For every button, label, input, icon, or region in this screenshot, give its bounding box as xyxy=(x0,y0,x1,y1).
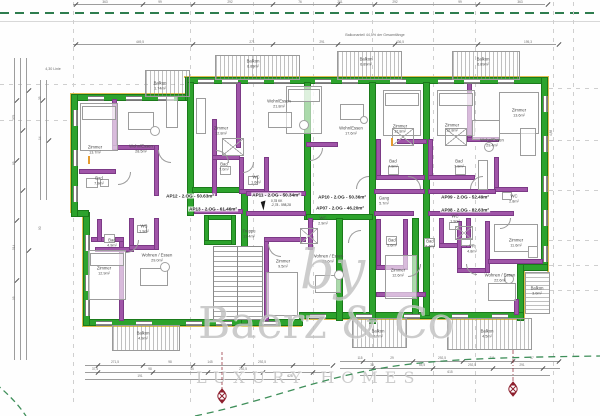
dimension-value: 99 xyxy=(458,0,462,4)
round-fixture xyxy=(160,262,170,272)
window xyxy=(543,176,548,192)
green-wall xyxy=(370,83,375,323)
survey-marker-icon xyxy=(218,352,226,403)
room-label: Wohn/Essen29.4m² xyxy=(480,138,504,147)
dimension-tick xyxy=(557,42,562,47)
room-area: 7.4m² xyxy=(425,244,435,248)
door-arc xyxy=(126,240,139,253)
dimension-value: 57 xyxy=(530,356,534,360)
room-label: WC1.9m² xyxy=(139,224,149,233)
apartment-label: AP08 - 2.OG - 82.63m² xyxy=(440,208,490,213)
room-area: 4.9m² xyxy=(372,334,385,338)
margin-line xyxy=(0,21,600,22)
interior-wall xyxy=(440,219,443,247)
room-area: 12.8m² xyxy=(214,131,228,135)
furniture xyxy=(166,96,178,128)
round-fixture xyxy=(150,126,160,136)
interior-wall xyxy=(515,300,518,314)
furniture xyxy=(488,283,516,301)
grid-line-horizontal xyxy=(549,290,600,291)
room-area: 12.6m² xyxy=(391,273,405,277)
window xyxy=(543,136,548,152)
window xyxy=(543,246,548,262)
green-wall xyxy=(205,216,235,219)
interior-wall xyxy=(155,219,158,249)
window xyxy=(85,235,90,251)
dimension-value: 145 xyxy=(207,360,212,364)
grid-line-horizontal xyxy=(549,140,600,141)
room-label: Balkon4.9m² xyxy=(137,331,150,340)
grid-line-horizontal xyxy=(549,88,600,89)
window xyxy=(216,321,232,326)
dimension-value: 615 xyxy=(447,370,452,374)
balcony-note: Balkonanteil 44,5% der Gesamtlänge xyxy=(345,33,404,37)
apartment-label: AP09 - 2.OG - 52.49m² xyxy=(440,195,490,200)
dimension-value: 99 xyxy=(158,0,162,4)
furniture xyxy=(439,93,473,106)
room-area: 1.6m² xyxy=(251,180,261,184)
dimension-tick xyxy=(21,188,26,193)
room-label: Zimmer12.8m² xyxy=(214,126,228,135)
room-area: 1.9m² xyxy=(450,219,460,223)
grid-line-vertical xyxy=(313,2,314,402)
interior-wall xyxy=(377,176,424,179)
interior-wall xyxy=(80,170,115,173)
room-area: 4.9m² xyxy=(137,336,150,340)
room-label: Wohn/Essen21.8m² xyxy=(267,99,291,108)
grid-line-vertical xyxy=(573,2,574,402)
dimension-value: 271 xyxy=(249,40,254,44)
room-area: 28.5m² xyxy=(129,149,153,153)
dimension-value: 55,5 xyxy=(419,363,425,367)
dimension-value: 115 xyxy=(357,356,362,360)
interior-wall xyxy=(429,176,474,179)
window xyxy=(85,300,90,316)
dimension-tick xyxy=(21,128,26,133)
room-label: Wohnen / Essen29.0m² xyxy=(142,253,173,262)
interior-wall xyxy=(247,212,305,215)
grid-line-horizontal xyxy=(549,265,600,266)
staircase xyxy=(213,246,263,320)
window xyxy=(73,110,78,126)
furniture xyxy=(196,98,206,134)
room-label: Wohn/Essen17.6m² xyxy=(339,126,363,135)
door-arc xyxy=(466,264,477,275)
dimension-value: 363 xyxy=(102,0,107,4)
room-area: 6.89m² xyxy=(360,62,373,66)
room-label: Zimmer12.8m² xyxy=(393,124,407,133)
dimension-value: 449,5 xyxy=(136,40,144,44)
room-label: Zimmer9.5m² xyxy=(276,259,290,268)
dimension-value: 292,5 xyxy=(468,363,476,367)
window xyxy=(262,321,278,326)
round-fixture xyxy=(334,270,344,280)
cursor-tooltip-line2: -2,78 - 598,28 xyxy=(271,203,291,207)
dimension-line-vertical xyxy=(26,58,27,360)
survey-marker-icon xyxy=(509,350,517,396)
highlight-mark xyxy=(391,138,393,146)
room-area: 13.7m² xyxy=(88,150,102,154)
interior-wall xyxy=(489,260,542,263)
dimension-tick xyxy=(27,88,32,93)
door-arc xyxy=(158,150,171,163)
dimension-tick xyxy=(27,248,32,253)
dimension-line xyxy=(340,361,560,362)
watermark-tagline: LUXURY HOMES xyxy=(196,368,421,387)
room-label: Wohnen / Essen23.6m² xyxy=(313,254,344,263)
site-boundary-line xyxy=(0,12,600,14)
dimension-value: 271,5 xyxy=(111,360,119,364)
interior-wall xyxy=(495,158,498,190)
round-fixture xyxy=(299,120,309,130)
room-label: Balkon1.74m² xyxy=(154,81,167,90)
dimension-tick xyxy=(47,138,52,143)
wardrobe xyxy=(455,226,473,240)
room-label: Balkon6.89m² xyxy=(477,57,490,66)
window xyxy=(315,79,331,84)
green-wall xyxy=(193,188,242,192)
dimension-value: 291 xyxy=(319,40,324,44)
interior-wall xyxy=(377,220,380,268)
door-arc xyxy=(408,264,421,277)
terrain-line-left xyxy=(0,384,26,416)
room-area: 22.6m² xyxy=(485,278,516,282)
dimension-value: 95 xyxy=(12,296,16,300)
interior-wall xyxy=(495,188,527,191)
green-wall xyxy=(424,83,429,315)
door-arc xyxy=(118,172,131,185)
grid-line-vertical xyxy=(433,2,434,402)
dimension-value: 292 xyxy=(227,0,232,4)
grid-line-horizontal xyxy=(0,120,70,121)
room-area: 21.8m² xyxy=(267,104,291,108)
interior-wall xyxy=(429,190,495,193)
furniture xyxy=(385,93,419,106)
room-label: Bad4.9m² xyxy=(107,238,117,247)
dimension-value: 98 xyxy=(168,360,172,364)
window xyxy=(543,96,548,112)
grid-line-horizontal xyxy=(549,240,600,241)
dimension-line xyxy=(85,379,300,380)
interior-wall xyxy=(375,190,424,193)
window xyxy=(88,96,104,101)
apartment-label: AP12 - 2.OG - 50.63m² xyxy=(165,194,215,199)
room-label: Treppe13.4m² xyxy=(242,229,255,238)
dimension-line xyxy=(360,375,550,376)
window xyxy=(186,321,202,326)
room-area: 4.8m² xyxy=(467,249,477,253)
room-area: 6.89m² xyxy=(247,64,260,68)
room-area: 7.0m² xyxy=(219,167,229,171)
dimension-value: 98 xyxy=(148,367,152,371)
furniture xyxy=(82,106,116,120)
furniture xyxy=(268,112,292,128)
room-area: 12.9m² xyxy=(97,271,111,275)
bath-fixture xyxy=(528,246,538,258)
room-label: Balkon4.9m² xyxy=(372,329,385,338)
floor-plan-sheet: 4,30 Linie Balkonanteil 44,5% der Gesamt… xyxy=(0,0,600,416)
room-label: Wohn/Essen28.5m² xyxy=(129,144,153,153)
dimension-value: 375 xyxy=(12,115,16,120)
room-label: WC2.8m² xyxy=(509,194,519,203)
room-area: 7.9m² xyxy=(388,164,398,168)
staircase-divider xyxy=(237,246,238,318)
furniture xyxy=(266,272,298,316)
wardrobe xyxy=(300,228,318,244)
room-label: Zimmer12.6m² xyxy=(391,268,405,277)
dimension-value: 76 xyxy=(298,0,302,4)
green-wall xyxy=(232,216,235,244)
room-label: Bad7.9m² xyxy=(94,176,104,185)
room-label: Zimmer12.8m² xyxy=(445,123,459,132)
interior-wall xyxy=(265,158,268,192)
room-label: Zimmer12.9m² xyxy=(97,266,111,275)
room-area: 5.7m² xyxy=(379,201,389,205)
room-label: WC2.9m² xyxy=(318,216,328,225)
dimension-tick xyxy=(15,98,20,103)
room-label: Balkon6.89m² xyxy=(247,59,260,68)
dimension-value: 191 xyxy=(137,374,142,378)
room-label: WC1.9m² xyxy=(450,214,460,223)
right-dim: 4,88 xyxy=(549,130,553,136)
room-label: WC1.6m² xyxy=(251,175,261,184)
room-label: Zimmer13.6m² xyxy=(512,108,526,117)
dimension-tick xyxy=(15,218,20,223)
interior-wall xyxy=(265,238,305,241)
door-arc xyxy=(310,148,323,161)
dimension-value: 292,5 xyxy=(258,360,266,364)
green-wall xyxy=(520,265,547,270)
apartment-label: AP11 - 2.OG - 50.34m² xyxy=(251,193,301,198)
dimension-tick xyxy=(546,2,551,7)
room-area: 13.4m² xyxy=(242,234,255,238)
apartment-label: AP10 - 2.OG - 50.36m² xyxy=(317,195,367,200)
room-area: 2.9m² xyxy=(318,221,328,225)
room-area: 7.9m² xyxy=(454,164,464,168)
dimension-value: 291 xyxy=(519,363,524,367)
interior-wall xyxy=(307,143,337,146)
room-label: Balkon3.0m² xyxy=(531,286,544,295)
room-label: Bad7.9m² xyxy=(388,159,398,168)
dimension-line-vertical xyxy=(20,58,21,360)
dimension-value: 90 xyxy=(38,226,42,230)
balcony-hatch xyxy=(145,70,190,97)
door-arc xyxy=(356,176,369,189)
interior-wall xyxy=(429,140,432,178)
dimension-tick xyxy=(15,278,20,283)
dimension-value: 363 xyxy=(517,0,522,4)
room-area: 7.9m² xyxy=(94,181,104,185)
room-area: 3.0m² xyxy=(531,291,544,295)
round-fixture xyxy=(360,116,368,124)
grid-line-horizontal xyxy=(549,190,600,191)
door-arc xyxy=(348,230,361,243)
interior-wall xyxy=(98,220,101,241)
dimension-value: 292 xyxy=(392,0,397,4)
room-label: Bad7.0m² xyxy=(219,162,229,171)
furniture xyxy=(520,128,536,156)
dimension-tick xyxy=(15,158,20,163)
room-area: 4.5m² xyxy=(481,334,494,338)
room-area: 1.9m² xyxy=(139,229,149,233)
room-label: Balkon6.89m² xyxy=(360,57,373,66)
window xyxy=(198,79,214,84)
room-area: 12.8m² xyxy=(445,128,459,132)
room-label: Zimmer11.6m² xyxy=(509,238,523,247)
room-area: 13.6m² xyxy=(512,113,526,117)
dimension-value: 625 xyxy=(287,374,292,378)
room-area: 29.4m² xyxy=(480,143,504,147)
room-area: 11.6m² xyxy=(509,243,523,247)
apartment-label: AP07 - 2.OG - 46.20m² xyxy=(315,206,365,211)
room-label: Zimmer13.7m² xyxy=(88,145,102,154)
room-label: Gang5.7m² xyxy=(379,196,389,205)
green-wall xyxy=(205,216,208,244)
dimension-value: 195,3 xyxy=(524,40,532,44)
window xyxy=(73,186,78,202)
room-label: Bad7.4m² xyxy=(425,239,435,248)
dimension-line xyxy=(73,44,556,45)
room-area: 6.89m² xyxy=(477,62,490,66)
window xyxy=(126,96,142,101)
furniture xyxy=(288,89,320,102)
green-wall xyxy=(205,241,235,244)
furniture xyxy=(90,253,124,266)
interior-wall xyxy=(377,140,380,178)
dimension-value: 292,5 xyxy=(438,356,446,360)
room-area: 29.0m² xyxy=(142,258,173,262)
room-area: 9.5m² xyxy=(276,264,290,268)
interior-wall xyxy=(486,222,489,272)
cursor-tooltip: 0,78 KK -2,78 - 598,28 xyxy=(271,200,291,208)
dimension-tick xyxy=(557,359,562,364)
window xyxy=(96,321,112,326)
apartment-label: AP13 - 2.OG - 61.46m² xyxy=(188,207,238,212)
window xyxy=(73,150,78,166)
window xyxy=(310,314,326,319)
room-area: 4.9m² xyxy=(107,243,117,247)
room-label: VR4.8m² xyxy=(467,244,477,253)
room-area: 17.6m² xyxy=(339,131,363,135)
room-label: Balkon4.5m² xyxy=(481,329,494,338)
room-label: Bad7.9m² xyxy=(454,159,464,168)
green-wall xyxy=(518,265,523,320)
dimension-value: 514 xyxy=(12,245,16,250)
dimension-value: 14 xyxy=(38,136,42,140)
door-arc xyxy=(268,244,281,257)
room-label: Bad5.6m² xyxy=(387,238,397,247)
room-area: 12.8m² xyxy=(393,129,407,133)
dimension-value: 29 xyxy=(390,356,394,360)
interior-wall xyxy=(375,212,413,215)
window xyxy=(543,210,548,226)
linie-label: 4,30 Linie xyxy=(45,67,61,71)
mouse-cursor-icon[interactable] xyxy=(261,200,269,210)
room-area: 5.6m² xyxy=(387,243,397,247)
dimension-tick xyxy=(331,363,336,368)
room-area: 1.74m² xyxy=(154,86,167,90)
room-label: Wohnen / Essen22.6m² xyxy=(485,273,516,282)
grid-line-vertical xyxy=(553,2,554,402)
room-area: 23.6m² xyxy=(313,259,344,263)
room-area: 2.8m² xyxy=(509,199,519,203)
dimension-value: 211 xyxy=(489,356,494,360)
highlight-mark xyxy=(88,156,90,164)
